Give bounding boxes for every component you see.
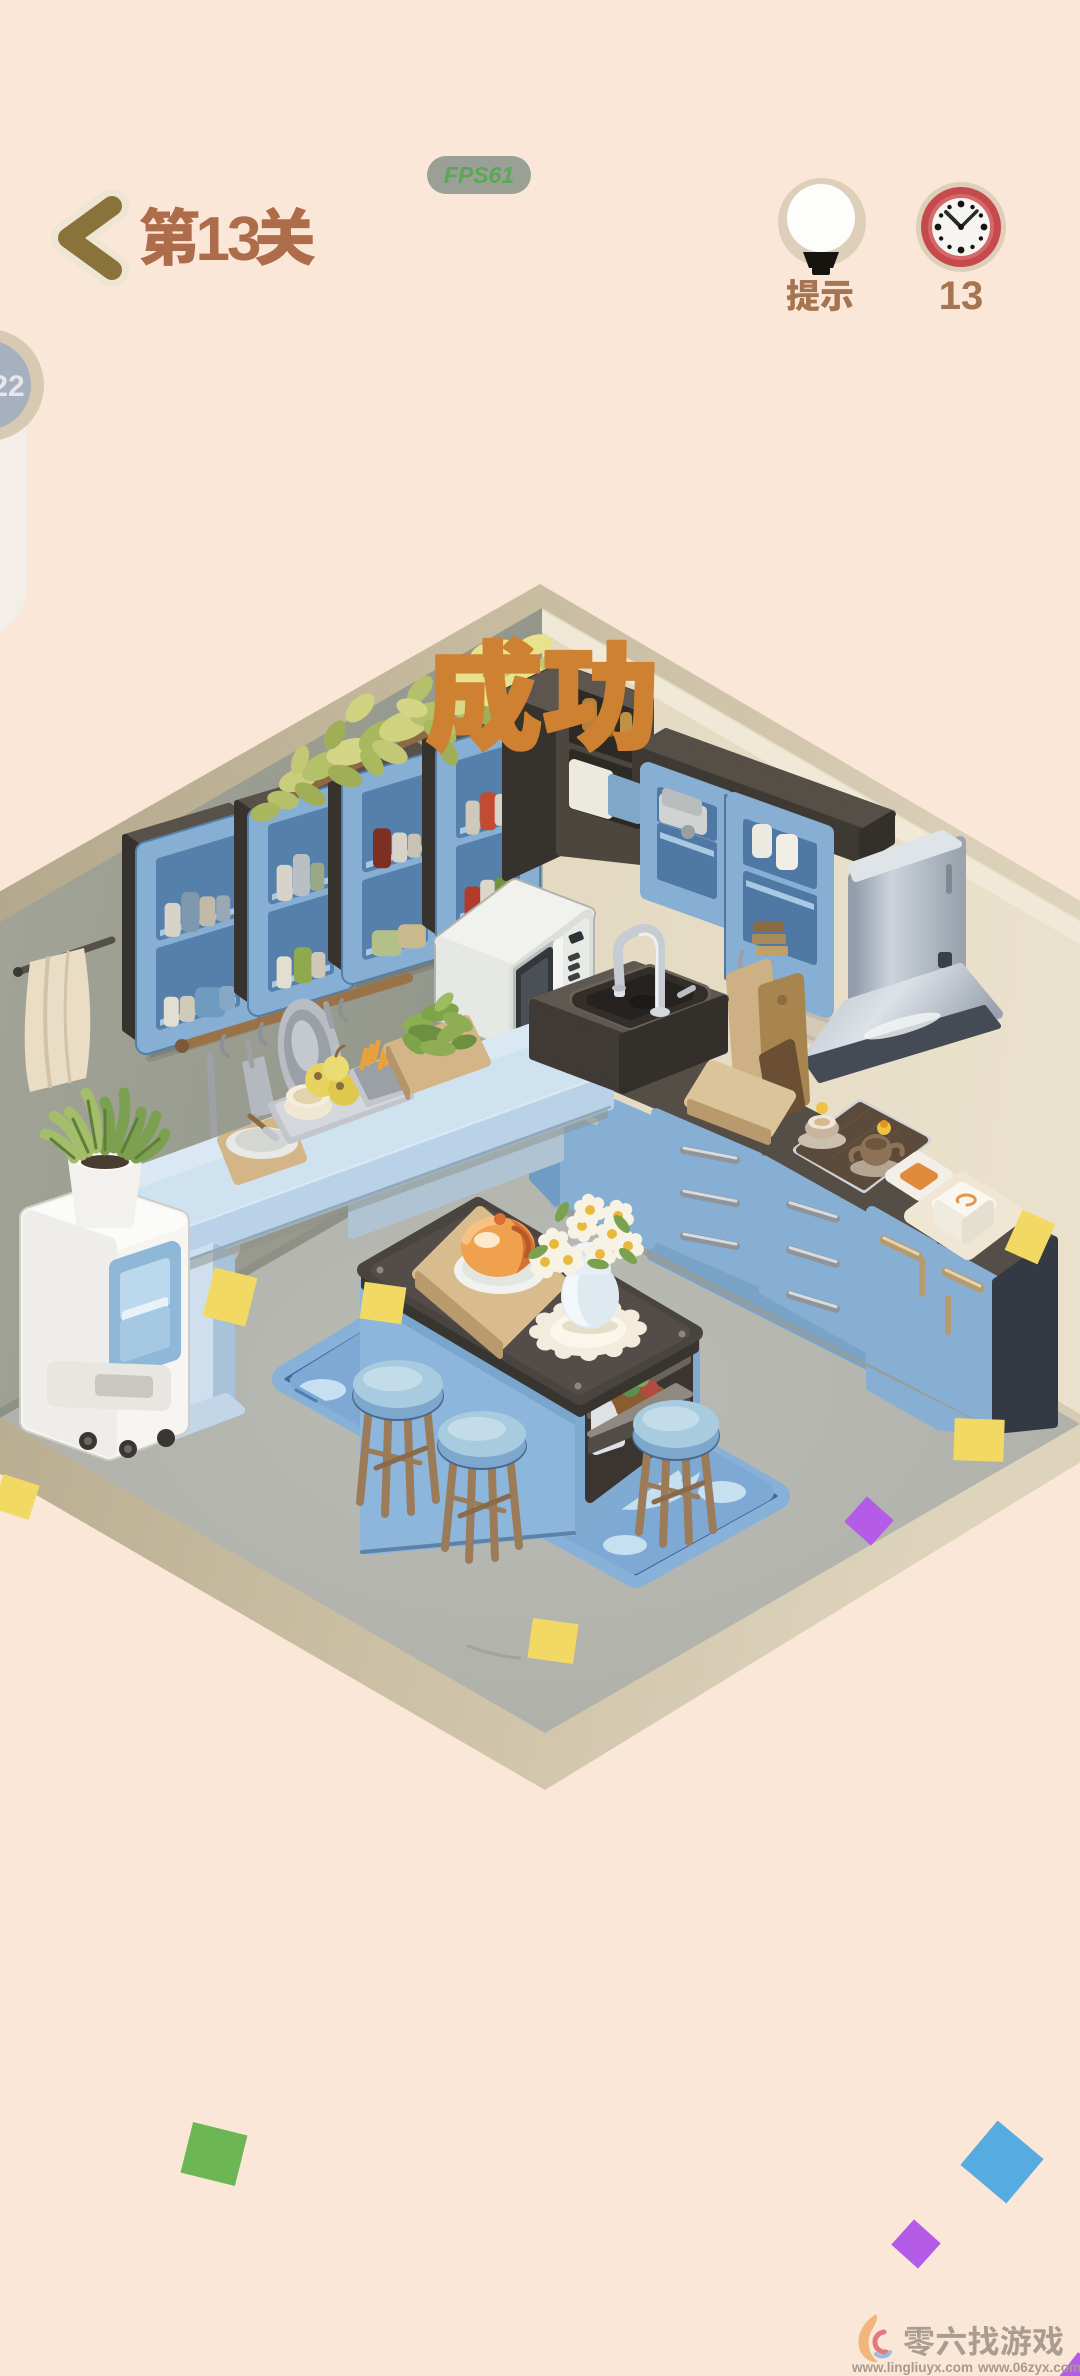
svg-text:www.06zyx.com: www.06zyx.com [977,2360,1080,2375]
svg-text:FPS61: FPS61 [444,162,514,188]
svg-text:www.lingliuyx.com: www.lingliuyx.com [851,2360,973,2375]
svg-text:13: 13 [939,274,984,318]
svg-text:13: 13 [196,205,260,274]
svg-text:22: 22 [0,370,25,403]
